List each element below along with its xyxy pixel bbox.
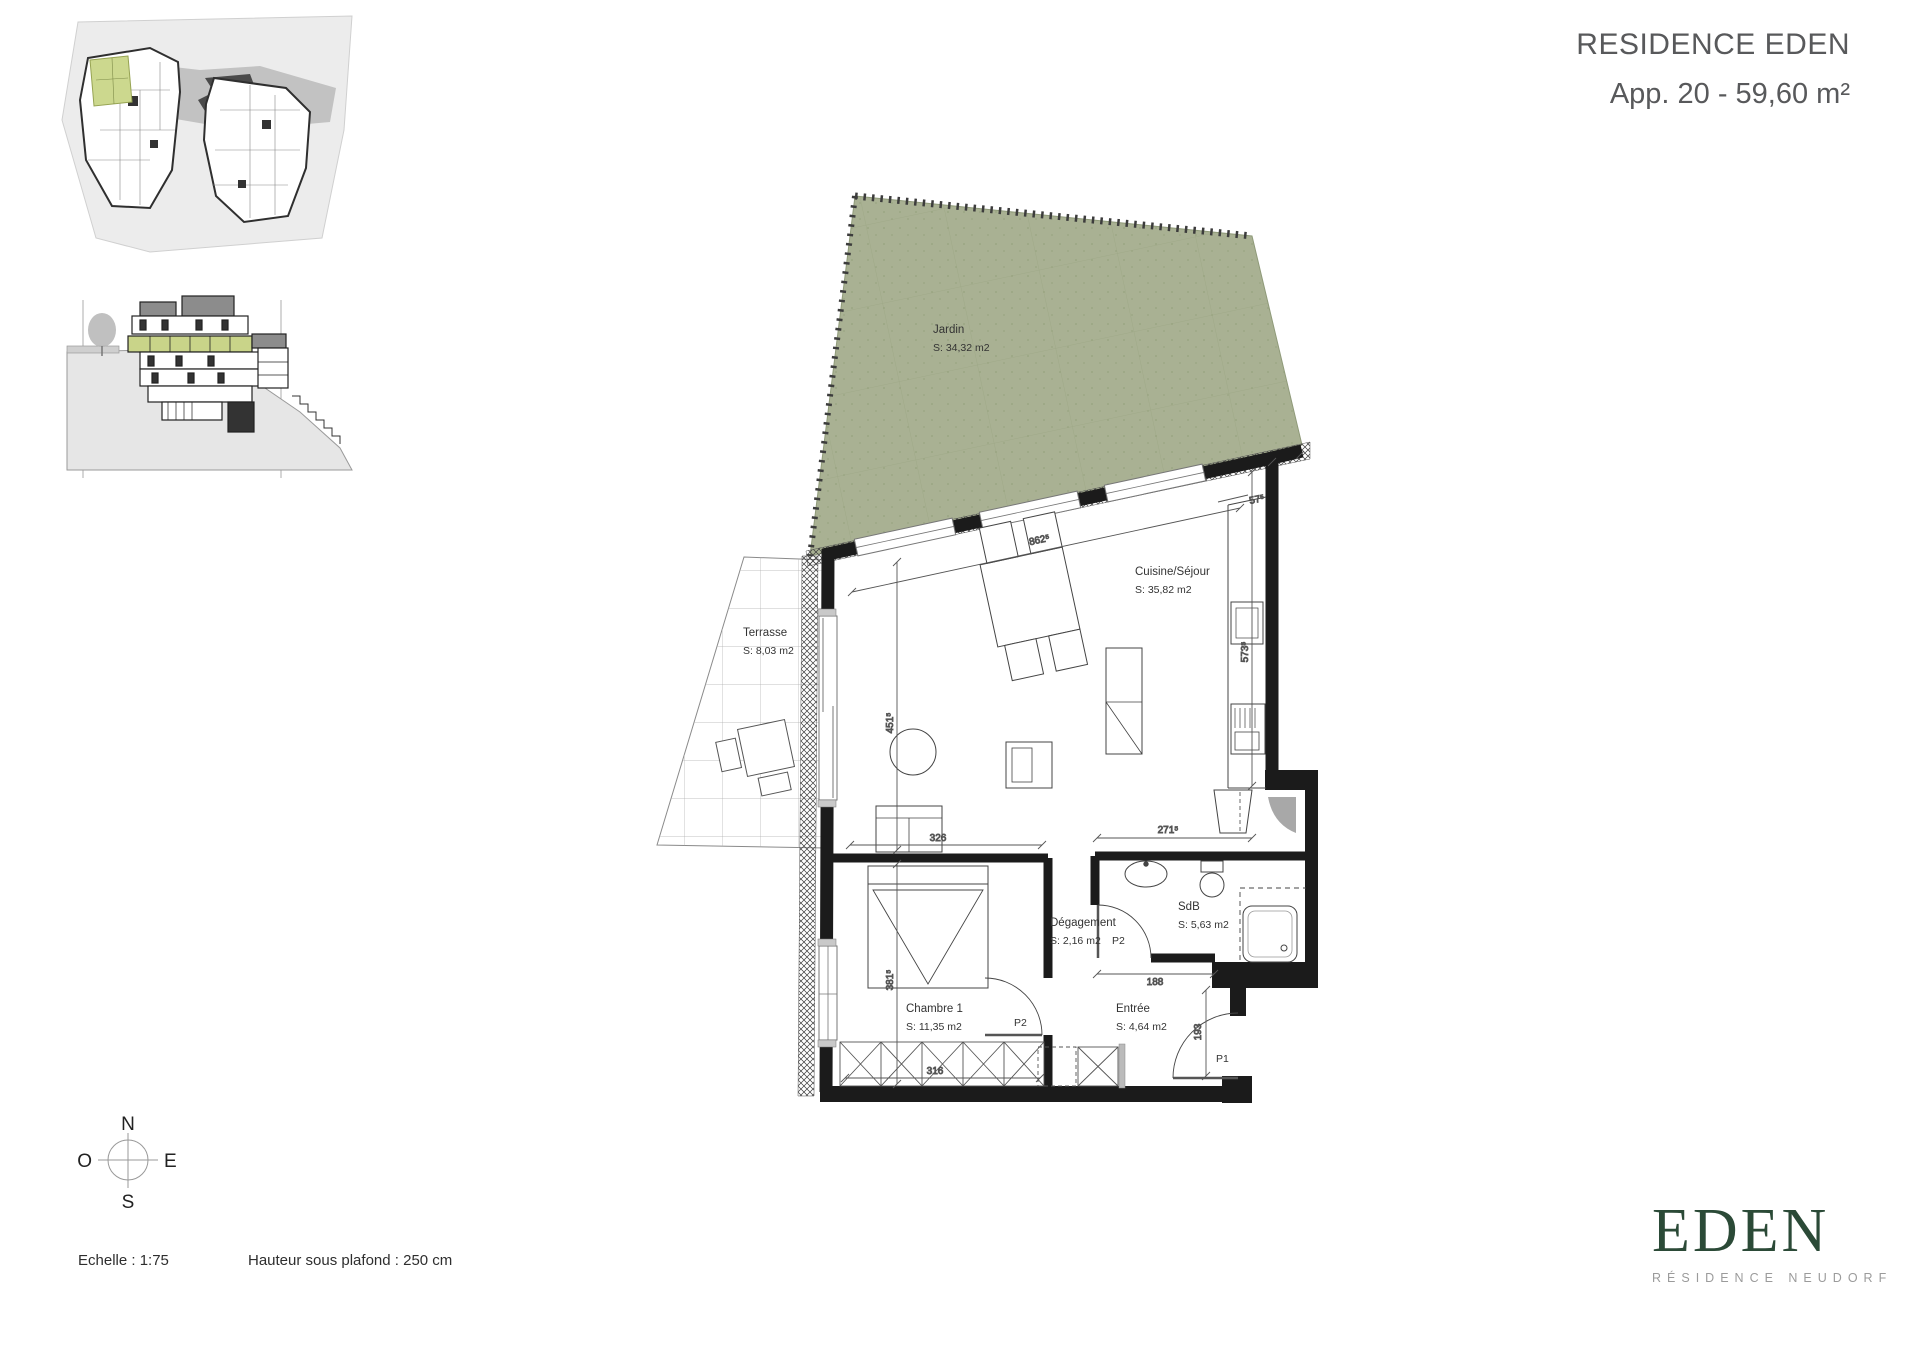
svg-text:573⁵: 573⁵ (1240, 642, 1251, 663)
site-plan-inset (62, 16, 352, 252)
compass-south: S (122, 1192, 135, 1213)
svg-text:188: 188 (1147, 977, 1164, 988)
bedroom-window (818, 939, 837, 1047)
section-tree (88, 313, 116, 347)
dim-sdb-door: 188 (1093, 970, 1218, 988)
tv-unit (1006, 742, 1052, 788)
svg-text:316: 316 (927, 1066, 944, 1077)
room-area-terrasse: S: 8,03 m2 (743, 645, 794, 657)
room-label-cuisine: Cuisine/Séjour (1135, 566, 1210, 578)
ceiling-height-note: Hauteur sous plafond : 250 cm (248, 1252, 452, 1269)
scale-note: Echelle : 1:75 (78, 1252, 169, 1269)
room-label-terrasse: Terrasse (743, 627, 787, 639)
room-label-sdb: SdB (1178, 901, 1200, 913)
door-label-chambre: P2 (1014, 1017, 1027, 1029)
dim-kitchen-right: 573⁵ (1240, 468, 1256, 790)
room-area-degagement: S: 2,16 m2 (1050, 935, 1101, 947)
room-label-chambre: Chambre 1 (906, 1003, 963, 1015)
svg-text:326: 326 (930, 833, 947, 844)
compass: N S O E (77, 1114, 176, 1213)
svg-text:381⁵: 381⁵ (885, 970, 896, 991)
door-sdb: P2 (1098, 905, 1151, 958)
compass-west: O (77, 1151, 92, 1172)
door-chambre: P2 (985, 978, 1042, 1035)
door-label-entree: P1 (1216, 1053, 1229, 1065)
room-label-jardin: Jardin (933, 324, 964, 336)
svg-text:451⁵: 451⁵ (885, 713, 896, 734)
logo-tagline: RÉSIDENCE NEUDORF (1652, 1271, 1892, 1285)
room-area-sdb: S: 5,63 m2 (1178, 919, 1229, 931)
room-area-entree: S: 4,64 m2 (1116, 1021, 1167, 1033)
shower (1243, 906, 1297, 962)
bathroom-fixtures (1125, 861, 1306, 962)
exterior-walls (820, 451, 1318, 1103)
section-inset (67, 296, 352, 478)
svg-text:193: 193 (1193, 1023, 1204, 1040)
logo-wordmark: EDEN (1652, 1200, 1892, 1262)
room-label-degagement: Dégagement (1050, 917, 1117, 929)
door-label-sdb: P2 (1112, 935, 1125, 947)
room-area-chambre: S: 11,35 m2 (906, 1021, 962, 1033)
compass-north: N (121, 1114, 135, 1135)
wardrobe (840, 1042, 1044, 1086)
brand-logo: EDEN RÉSIDENCE NEUDORF (1652, 1200, 1892, 1285)
entry-cabinet (1078, 1047, 1118, 1086)
kitchen-sink (1231, 704, 1265, 754)
site-building-right (204, 78, 310, 222)
living-furniture (876, 512, 1088, 852)
room-area-jardin: S: 34,32 m2 (933, 342, 990, 354)
terrace-sliding-door (818, 609, 837, 807)
door-entree: P1 (1173, 1013, 1238, 1078)
architectural-drawing: Jardin S: 34,32 m2 Terrasse S: 8,03 m2 (0, 0, 1920, 1358)
tall-cabinet (1214, 790, 1252, 833)
washbasin (1125, 861, 1167, 887)
svg-text:271⁵: 271⁵ (1158, 825, 1179, 836)
site-highlighted-unit (90, 56, 132, 106)
bedroom-furniture (840, 866, 1044, 1086)
room-area-cuisine: S: 35,82 m2 (1135, 584, 1192, 596)
duct (1268, 797, 1296, 833)
dim-entree-door: 193 (1193, 986, 1210, 1080)
room-label-entree: Entrée (1116, 1003, 1150, 1015)
compass-east: E (164, 1151, 177, 1172)
toilet (1200, 861, 1224, 897)
kitchen-island (1106, 648, 1142, 754)
svg-text:57⁵: 57⁵ (1248, 493, 1265, 507)
